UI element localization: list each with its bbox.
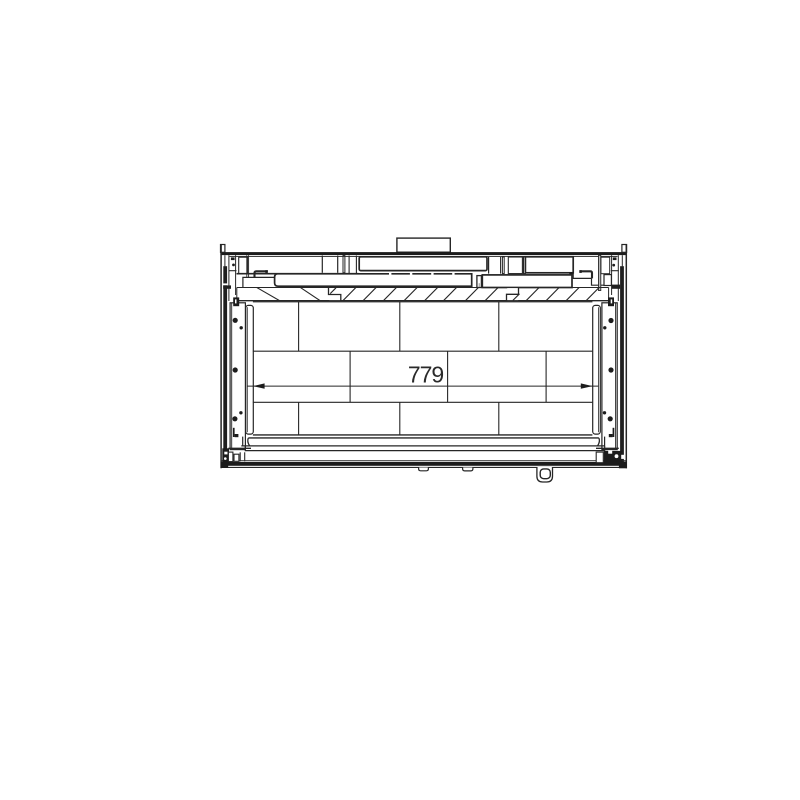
svg-text:779: 779 [408, 362, 444, 388]
